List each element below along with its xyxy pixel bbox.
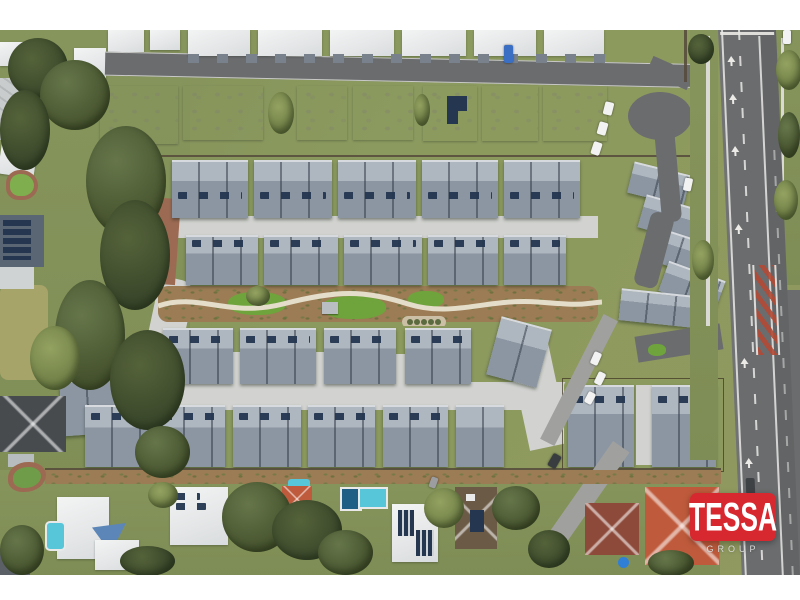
solar-panel-row [330,336,390,343]
white-roof-building [482,86,538,141]
tree-canopy [30,326,80,390]
tree-canopy [492,486,540,530]
pool-toy [618,557,629,568]
white-roof-building [353,86,413,140]
parked-car [504,45,513,63]
garden-path-graphic [158,284,602,326]
traffic-island [648,344,666,356]
turn-arrow-marking [732,96,734,104]
white-roof-building [297,86,347,140]
parked-car [590,141,603,156]
swimming-pool [358,487,388,509]
solar-panel-array [470,510,484,532]
maroon-roof-house [585,503,639,555]
turn-arrow-marking [738,226,740,234]
tree-canopy [688,34,714,64]
solar-panel-row [192,240,252,247]
tree-canopy [318,530,373,575]
tree-canopy [135,426,190,478]
townhouse-roof-block [504,160,580,218]
putting-green [10,174,34,196]
turn-arrow-marking [730,58,732,66]
swimming-pool [45,521,66,551]
solar-panel-array [447,111,458,124]
solar-panel-row [510,240,560,247]
tree-canopy [110,330,185,430]
white-unit-block [544,30,604,56]
tessa-logo: TESSA [690,493,776,541]
aerial-photo: TESSA GROUP [0,30,800,575]
tree-canopy [424,488,464,528]
turn-arrow-marking [743,360,745,368]
tree-canopy [0,90,50,170]
cluster-path [636,385,652,465]
tessa-group-label: GROUP [690,544,776,556]
solar-panel-row [411,336,465,343]
solar-panel-row [389,413,442,420]
boundary-fence [160,155,692,157]
tessa-logo-text: TESSA [689,494,777,540]
footpath [706,36,710,326]
solar-panel-array [416,530,434,556]
tree-canopy [40,60,110,130]
crossing-line [720,32,774,35]
solar-panel-row [314,413,369,420]
solar-panel-array [398,510,414,536]
white-unit-block [402,30,466,56]
townhouse-roof-block [338,160,416,218]
parked-car [603,101,615,116]
car-on-road [783,30,791,44]
solar-panel-row [176,503,206,510]
tree-canopy [246,286,270,306]
dark-roof-house [0,396,66,452]
tree-canopy [692,240,714,280]
solar-panel-row [176,493,200,500]
solar-panel-row [239,413,295,420]
painted-median-chevrons [752,265,780,355]
solar-panel-row [350,240,416,247]
solar-panel-row [344,192,410,199]
tree-canopy [414,94,430,126]
tree-canopy [648,550,694,575]
tree-canopy [528,530,570,568]
solar-panel-row [178,192,242,199]
skylight [466,494,475,501]
shed-roof [0,267,34,289]
turn-arrow-marking [748,460,750,468]
solar-panel-row [434,240,492,247]
solar-panel-row [428,192,492,199]
white-unit-block [330,30,394,56]
townhouse-roof-block [172,160,248,218]
turn-arrow-marking [734,148,736,156]
solar-panel-row [510,192,574,199]
tree-canopy [774,180,798,220]
white-roof-house [150,30,180,50]
solar-panel-row [246,336,310,343]
solar-panel-row [574,396,626,403]
white-unit-block [258,30,322,56]
white-roof-building [183,86,263,140]
townhouse-roof-block [422,160,498,218]
tree-canopy [120,546,175,575]
townhouse-roof-block [456,405,504,467]
tree-canopy [778,112,800,158]
parked-car [547,453,562,470]
car-on-road [746,478,756,494]
townhouse-roof-block [619,288,696,328]
solar-panel-array [3,220,31,260]
boundary-fence [684,30,687,82]
solar-panel-row [169,336,227,343]
tree-canopy [148,482,178,508]
white-roof-house [108,30,144,52]
solar-panel-row [260,192,326,199]
white-unit-block [188,30,250,56]
townhouse-roof-block [254,160,332,218]
garage-row [188,54,612,63]
solar-panel-row [270,240,332,247]
solar-panel-array [447,96,467,111]
tree-canopy [268,92,294,134]
tree-canopy [0,525,44,575]
garden-shed [322,302,338,314]
tree-canopy [776,50,800,90]
